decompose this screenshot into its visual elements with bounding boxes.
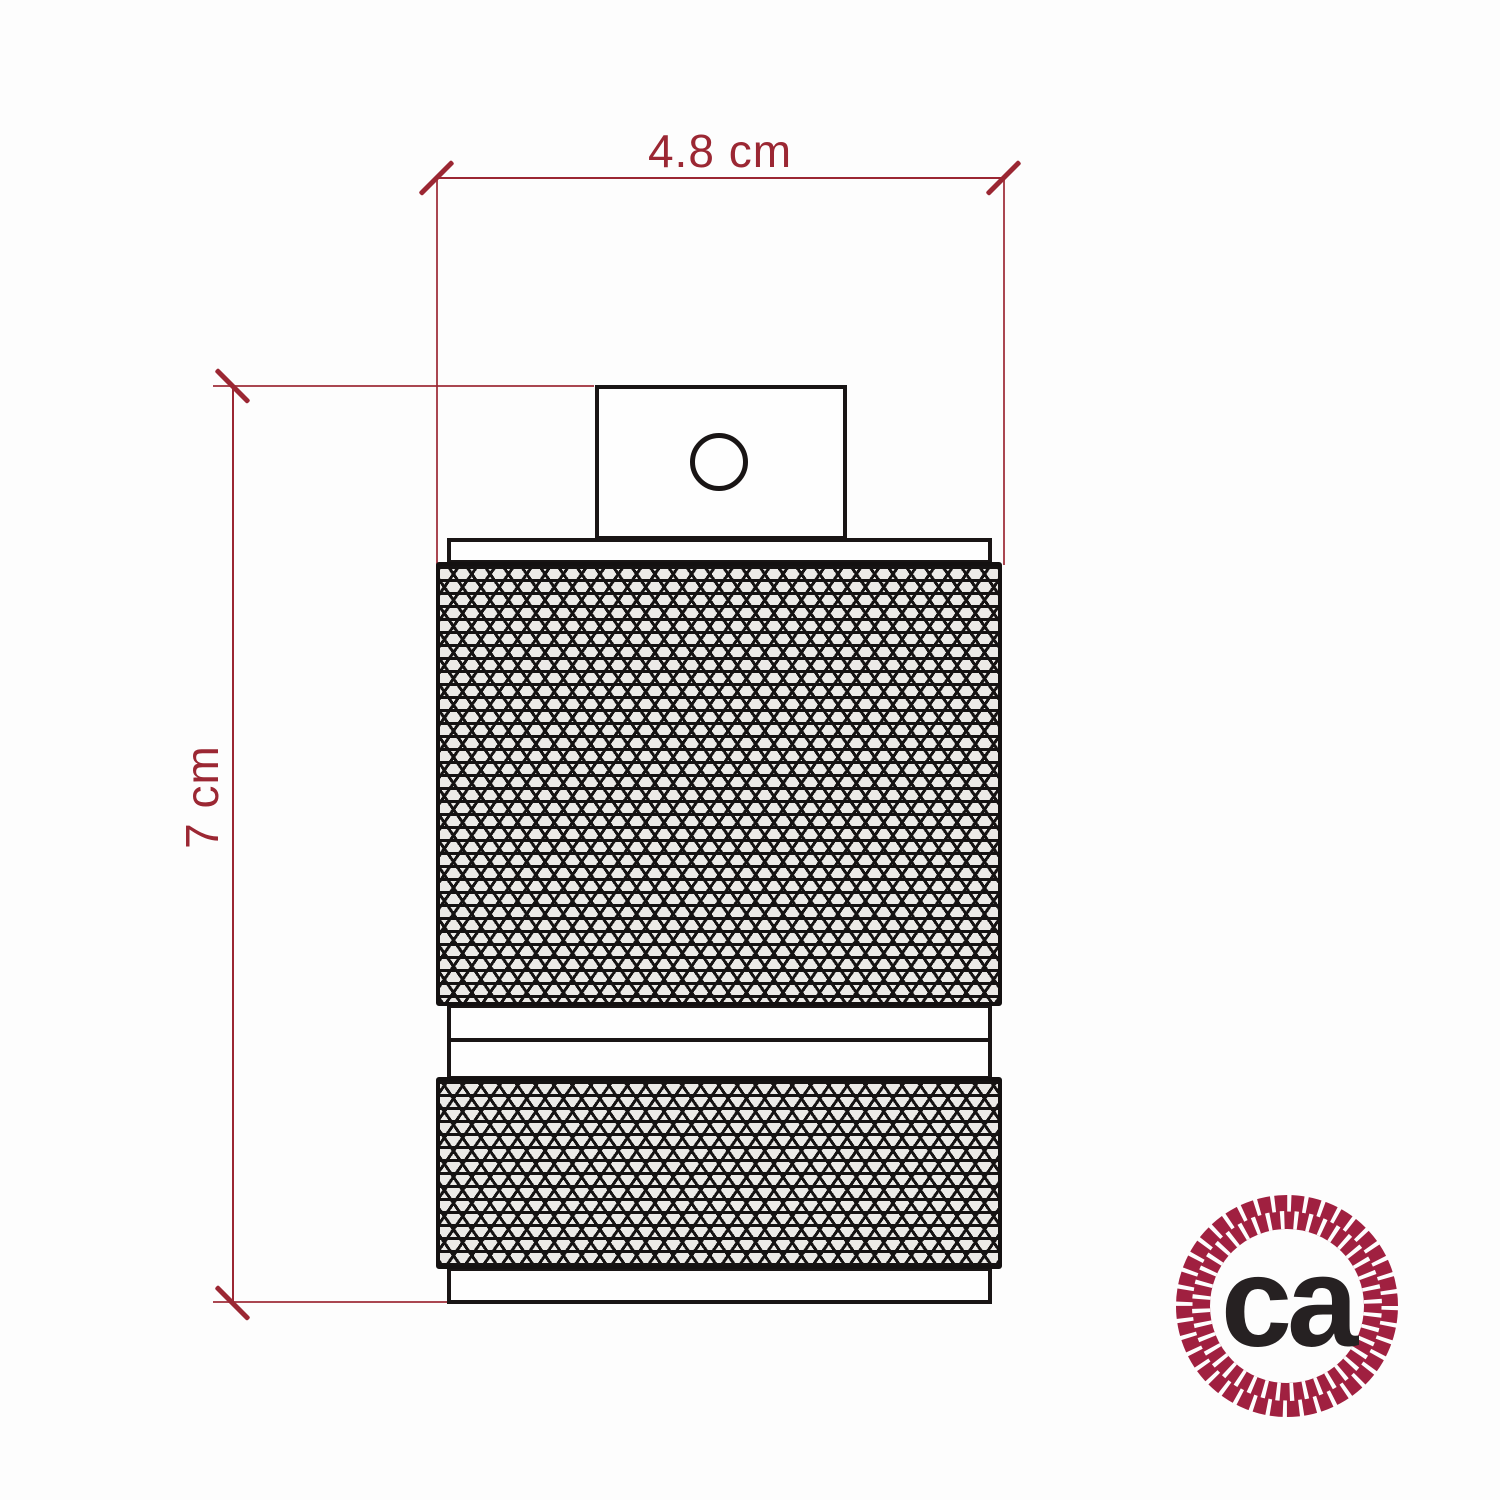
height-dimension-line bbox=[232, 385, 234, 1303]
smooth-ring-lower bbox=[447, 1038, 992, 1080]
width-extension-line-right bbox=[1003, 180, 1005, 565]
cable-entry-hole bbox=[690, 433, 748, 491]
bottom-ring bbox=[447, 1267, 992, 1304]
width-dimension-label: 4.8 cm bbox=[560, 124, 880, 178]
smooth-ring-upper bbox=[447, 1004, 992, 1042]
height-extension-line-top bbox=[213, 385, 594, 387]
top-cap-plate bbox=[447, 538, 992, 564]
height-extension-line-bottom bbox=[213, 1301, 450, 1303]
width-dimension-line bbox=[437, 177, 1004, 179]
brand-logo: ca bbox=[1167, 1186, 1407, 1426]
brand-logo-text: ca bbox=[1167, 1182, 1407, 1422]
lower-knurled-ring bbox=[436, 1077, 1002, 1269]
width-extension-line-left bbox=[436, 180, 438, 565]
height-dimension-label: 7 cm bbox=[175, 637, 229, 957]
upper-knurled-ring bbox=[436, 562, 1002, 1006]
technical-drawing-canvas: 4.8 cm 7 cm ca bbox=[0, 0, 1500, 1500]
